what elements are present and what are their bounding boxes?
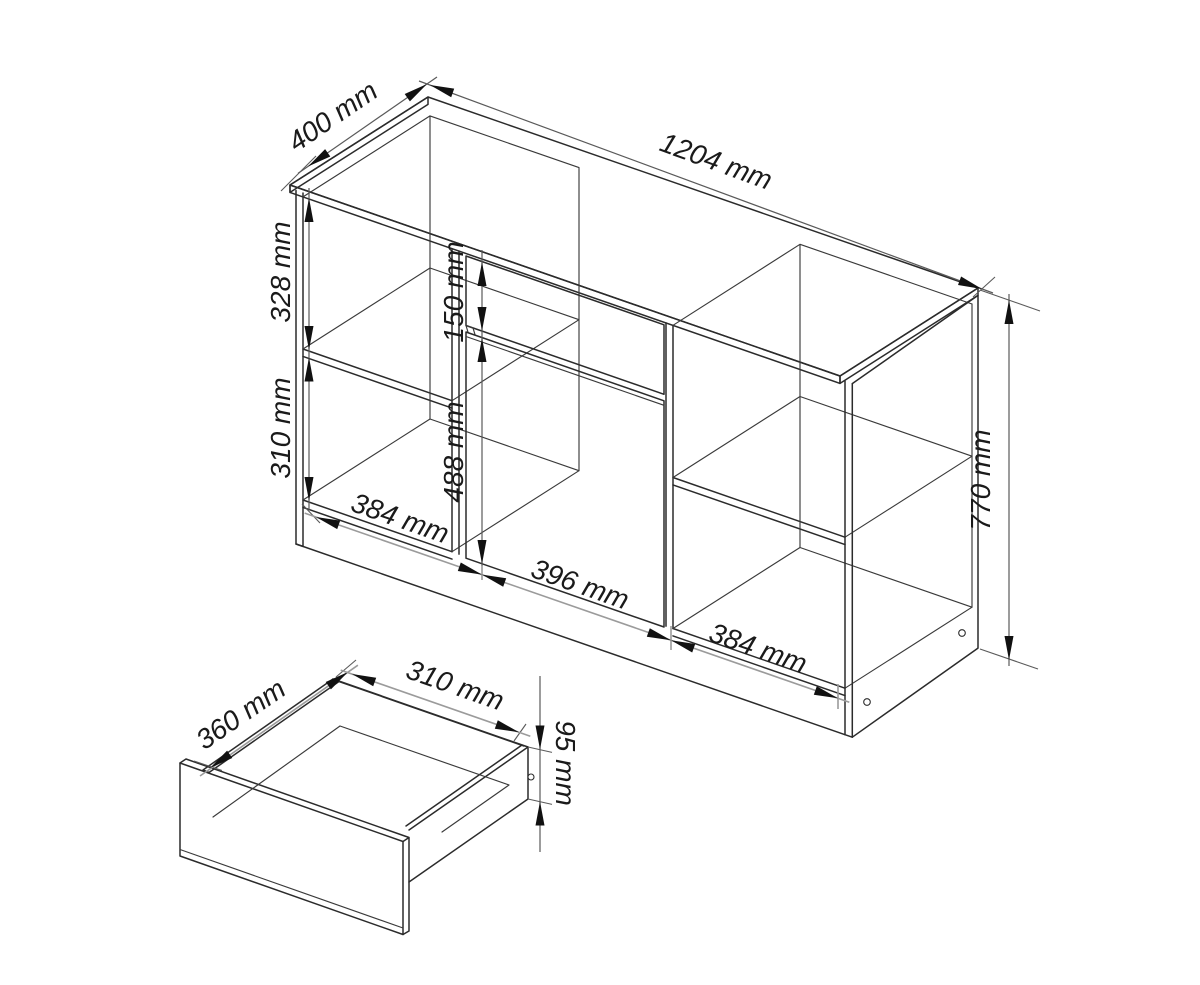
cabinet-height-label: 770 mm	[965, 429, 996, 530]
cabinet-drawer-front-panel	[466, 256, 664, 394]
cabinet-drawing	[290, 97, 978, 737]
dim-bottom-widths: 384 mm 396 mm 384 mm	[302, 487, 849, 709]
drawer-drawing: 360 mm 310 mm 95 mm	[180, 654, 581, 935]
drawer-width-label: 310 mm	[402, 654, 508, 717]
cabinet-door-top-edge	[466, 337, 664, 406]
cabinet-top-right-band	[840, 288, 978, 383]
screw-hole	[528, 774, 534, 780]
drawer-front-bottom-line	[180, 850, 403, 929]
furniture-dimension-diagram: 400 mm 1204 mm 328 mm 310 mm 150 mm 488 …	[0, 0, 1200, 985]
cabinet-depth-label: 400 mm	[282, 75, 383, 158]
drawer-front-height-label: 150 mm	[438, 241, 469, 342]
cabinet-left-panel	[296, 191, 303, 547]
dim-left-compartments: 328 mm 310 mm	[265, 188, 314, 510]
screw-hole	[864, 699, 871, 706]
drawer-interior-bottom	[213, 726, 509, 832]
dim-drawer-width: 310 mm	[341, 654, 531, 741]
cabinet-shelf-right	[673, 478, 845, 545]
left-lower-compartment-height-label: 310 mm	[265, 377, 296, 478]
cabinet-top-front-band	[290, 185, 840, 383]
technical-drawing: 400 mm 1204 mm 328 mm 310 mm 150 mm 488 …	[0, 0, 1200, 985]
drawer-front-top-band	[180, 759, 409, 935]
cabinet-divider-right	[666, 323, 673, 629]
door-height-label: 488 mm	[438, 401, 469, 502]
dim-cabinet-height: 770 mm	[965, 290, 1040, 669]
dim-drawer-height: 95 mm	[528, 676, 581, 852]
dim-cabinet-depth: 400 mm	[281, 75, 437, 191]
middle-section-width-label: 396 mm	[527, 553, 633, 616]
drawer-right-wall	[406, 745, 528, 882]
dim-drawer-depth: 360 mm	[190, 660, 358, 776]
screw-hole	[959, 630, 966, 637]
drawer-front-face	[180, 763, 403, 935]
left-upper-compartment-height-label: 328 mm	[265, 221, 296, 322]
cabinet-width-label: 1204 mm	[656, 127, 776, 196]
drawer-side-height-label: 95 mm	[550, 720, 581, 806]
